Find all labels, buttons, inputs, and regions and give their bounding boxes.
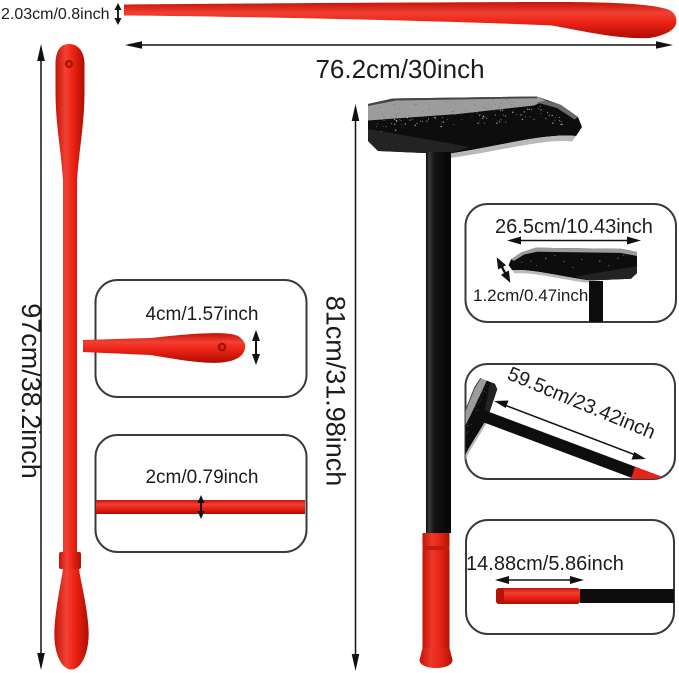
svg-text:2cm/0.79inch: 2cm/0.79inch bbox=[145, 467, 258, 488]
svg-text:2.03cm/0.8inch: 2.03cm/0.8inch bbox=[1, 6, 110, 23]
svg-text:26.5cm/10.43inch: 26.5cm/10.43inch bbox=[495, 216, 653, 238]
svg-text:1.2cm/0.47inch: 1.2cm/0.47inch bbox=[473, 286, 588, 305]
svg-text:81cm/31.98inch: 81cm/31.98inch bbox=[321, 296, 351, 487]
svg-text:97cm/38.2inch: 97cm/38.2inch bbox=[16, 303, 46, 479]
svg-text:14.88cm/5.86inch: 14.88cm/5.86inch bbox=[466, 553, 624, 575]
svg-text:4cm/1.57inch: 4cm/1.57inch bbox=[145, 304, 258, 325]
svg-text:76.2cm/30inch: 76.2cm/30inch bbox=[315, 54, 484, 84]
